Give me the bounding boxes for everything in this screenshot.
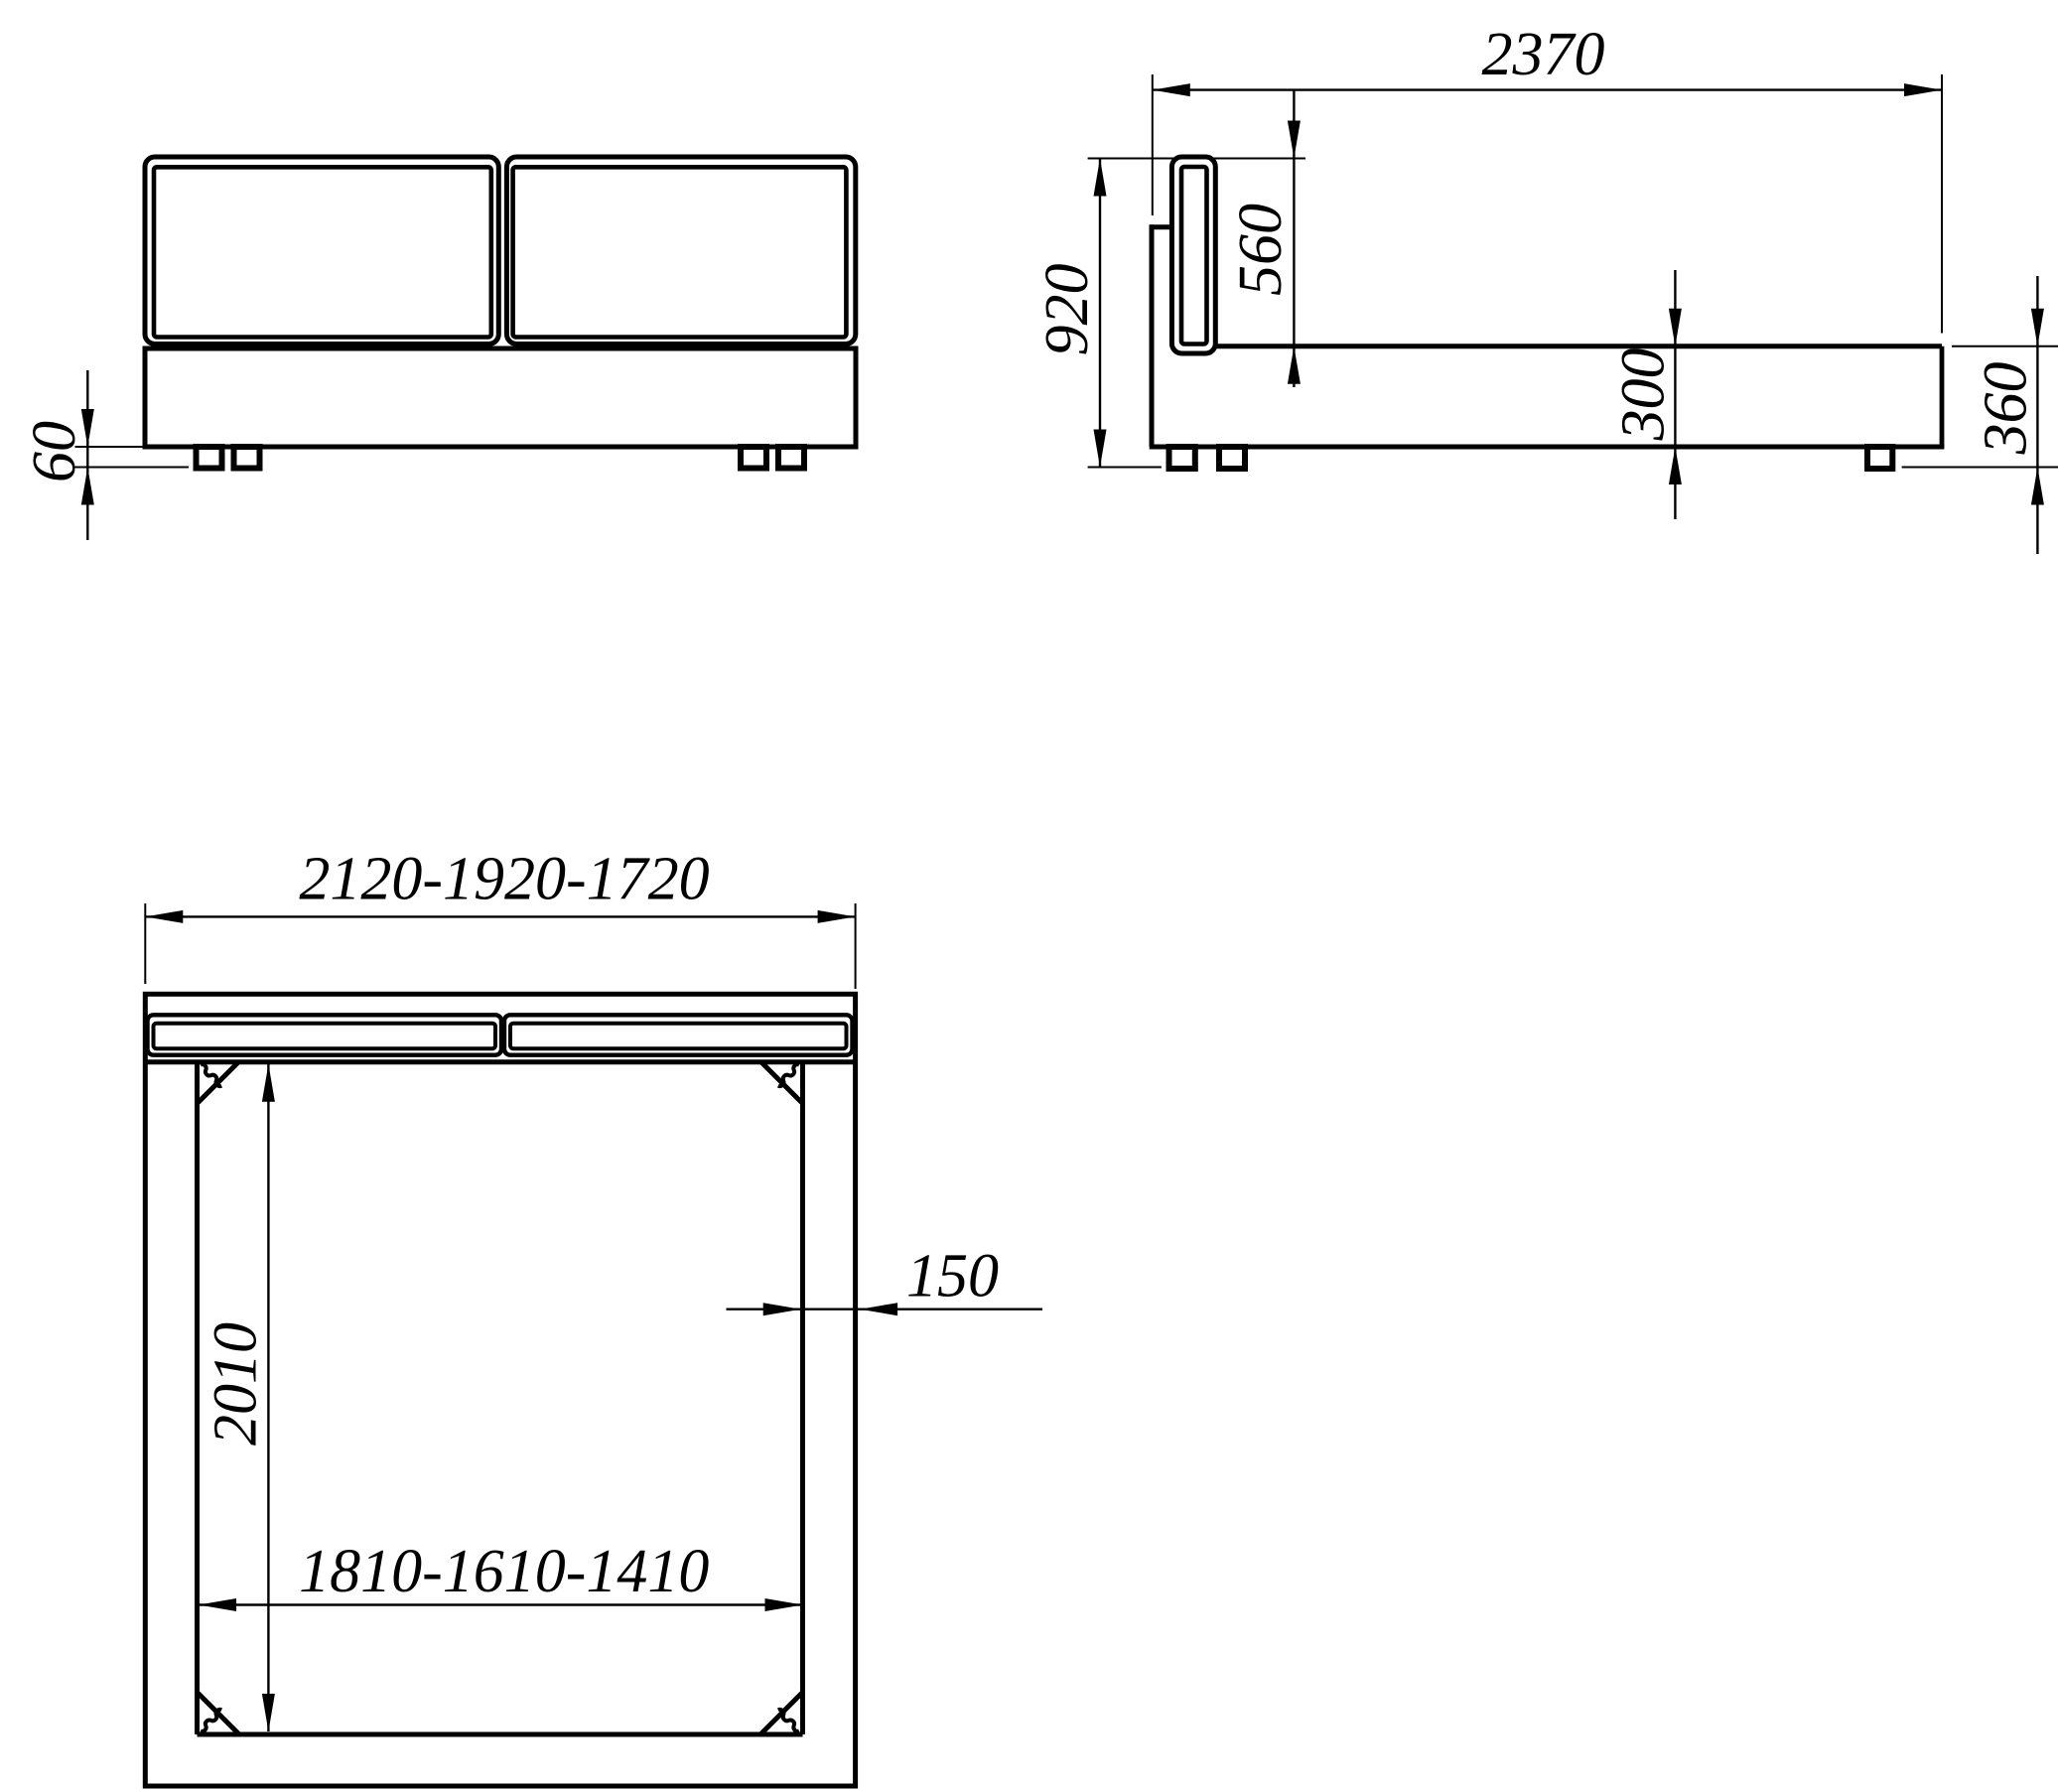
- svg-text:360: 360: [1973, 362, 2040, 456]
- svg-text:150: 150: [906, 1243, 999, 1310]
- svg-text:2120-1920-1720: 2120-1920-1720: [299, 846, 709, 913]
- svg-text:2370: 2370: [1482, 21, 1605, 88]
- svg-text:300: 300: [1610, 348, 1678, 442]
- svg-text:1810-1610-1410: 1810-1610-1410: [299, 1538, 709, 1605]
- svg-text:920: 920: [1033, 264, 1101, 356]
- svg-text:60: 60: [21, 421, 88, 482]
- svg-text:560: 560: [1227, 204, 1295, 296]
- svg-text:2010: 2010: [202, 1322, 269, 1446]
